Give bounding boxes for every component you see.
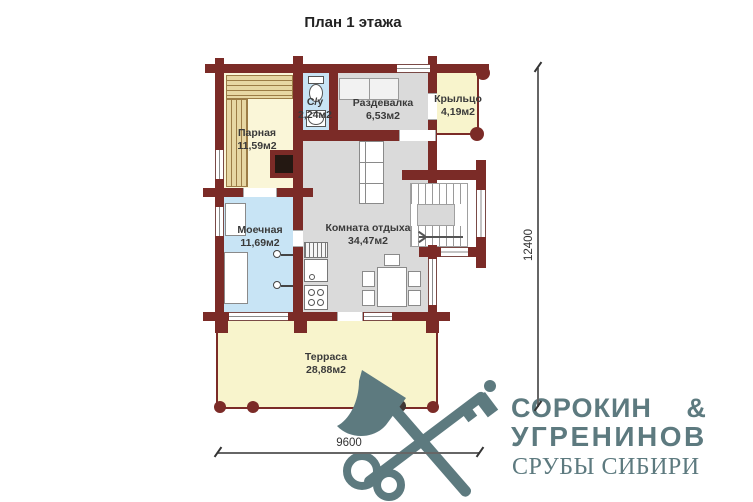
window [441,247,468,257]
chair [362,271,375,287]
window [215,150,224,179]
log-post [214,401,226,413]
sofa-backrest [365,142,366,203]
log-end [294,321,307,333]
door-opening [243,188,277,197]
logo-axe-key-icon [332,368,517,502]
room-label-moechnaya: Моечная 11,69м2 [210,224,310,250]
window [229,312,288,321]
stair-flight-up [411,184,467,204]
dimension-line-vertical [537,68,539,407]
burner-icon [308,299,315,306]
logo-line2: УГРЕНИНОВ [511,421,707,453]
shower-mixer-icon [273,281,281,289]
window [476,190,486,237]
logo-line3: СРУБЫ СИБИРИ [512,454,700,481]
burner-icon [317,299,324,306]
room-name: Крыльцо [418,93,498,106]
cooktop [304,285,328,310]
dimension-line-horizontal [218,452,480,454]
dimension-label-width: 9600 [309,437,389,449]
bench [224,252,248,304]
kitchen-faucet-icon [309,274,315,280]
log-end [426,321,439,333]
room-name: Терраса [276,351,376,364]
burner-icon [308,289,315,296]
shower-mixer [281,254,293,256]
window [397,64,430,73]
room-label-komnata-otdyha: Комната отдыха 34,47м2 [308,222,428,248]
window [364,312,392,321]
room-area: 11,69м2 [210,237,310,250]
room-area: 11,59м2 [207,140,307,153]
kitchen-sink [304,259,328,282]
chair [362,290,375,306]
sofa-cushion-line [360,183,383,184]
closet-divider [369,79,370,99]
room-area: 34,47м2 [308,235,428,248]
door-opening [337,312,363,321]
shower-mixer-icon [273,250,281,258]
window [428,259,437,305]
dining-table [377,267,407,307]
sofa [359,141,384,204]
door-opening [399,130,436,141]
room-name: Моечная [210,224,310,237]
log-end [215,321,228,333]
shower-mixer [281,285,293,287]
floor-plan-page: План 1 этажа [0,0,753,502]
logo-line1: СОРОКИН & [511,393,707,424]
page-title: План 1 этажа [203,14,503,31]
room-name: Комната отдыха [308,222,428,235]
log-post [247,401,259,413]
wall [402,170,486,180]
log-post [476,66,490,80]
terrace-edge [216,321,218,409]
burner-icon [317,289,324,296]
dimension-label-height: 12400 [523,225,537,265]
room-label-kryltso: Крыльцо 4,19м2 [418,93,498,119]
sofa-cushion-line [360,162,383,163]
chair [408,290,421,306]
room-area: 4,19м2 [418,106,498,119]
chair [408,271,421,287]
chair [384,254,400,266]
room-name: Парная [207,127,307,140]
sauna-bench-top [226,75,293,99]
log-post [470,127,484,141]
toilet-tank [308,76,324,84]
wall [205,64,489,73]
room-label-parnaya: Парная 11,59м2 [207,127,307,153]
